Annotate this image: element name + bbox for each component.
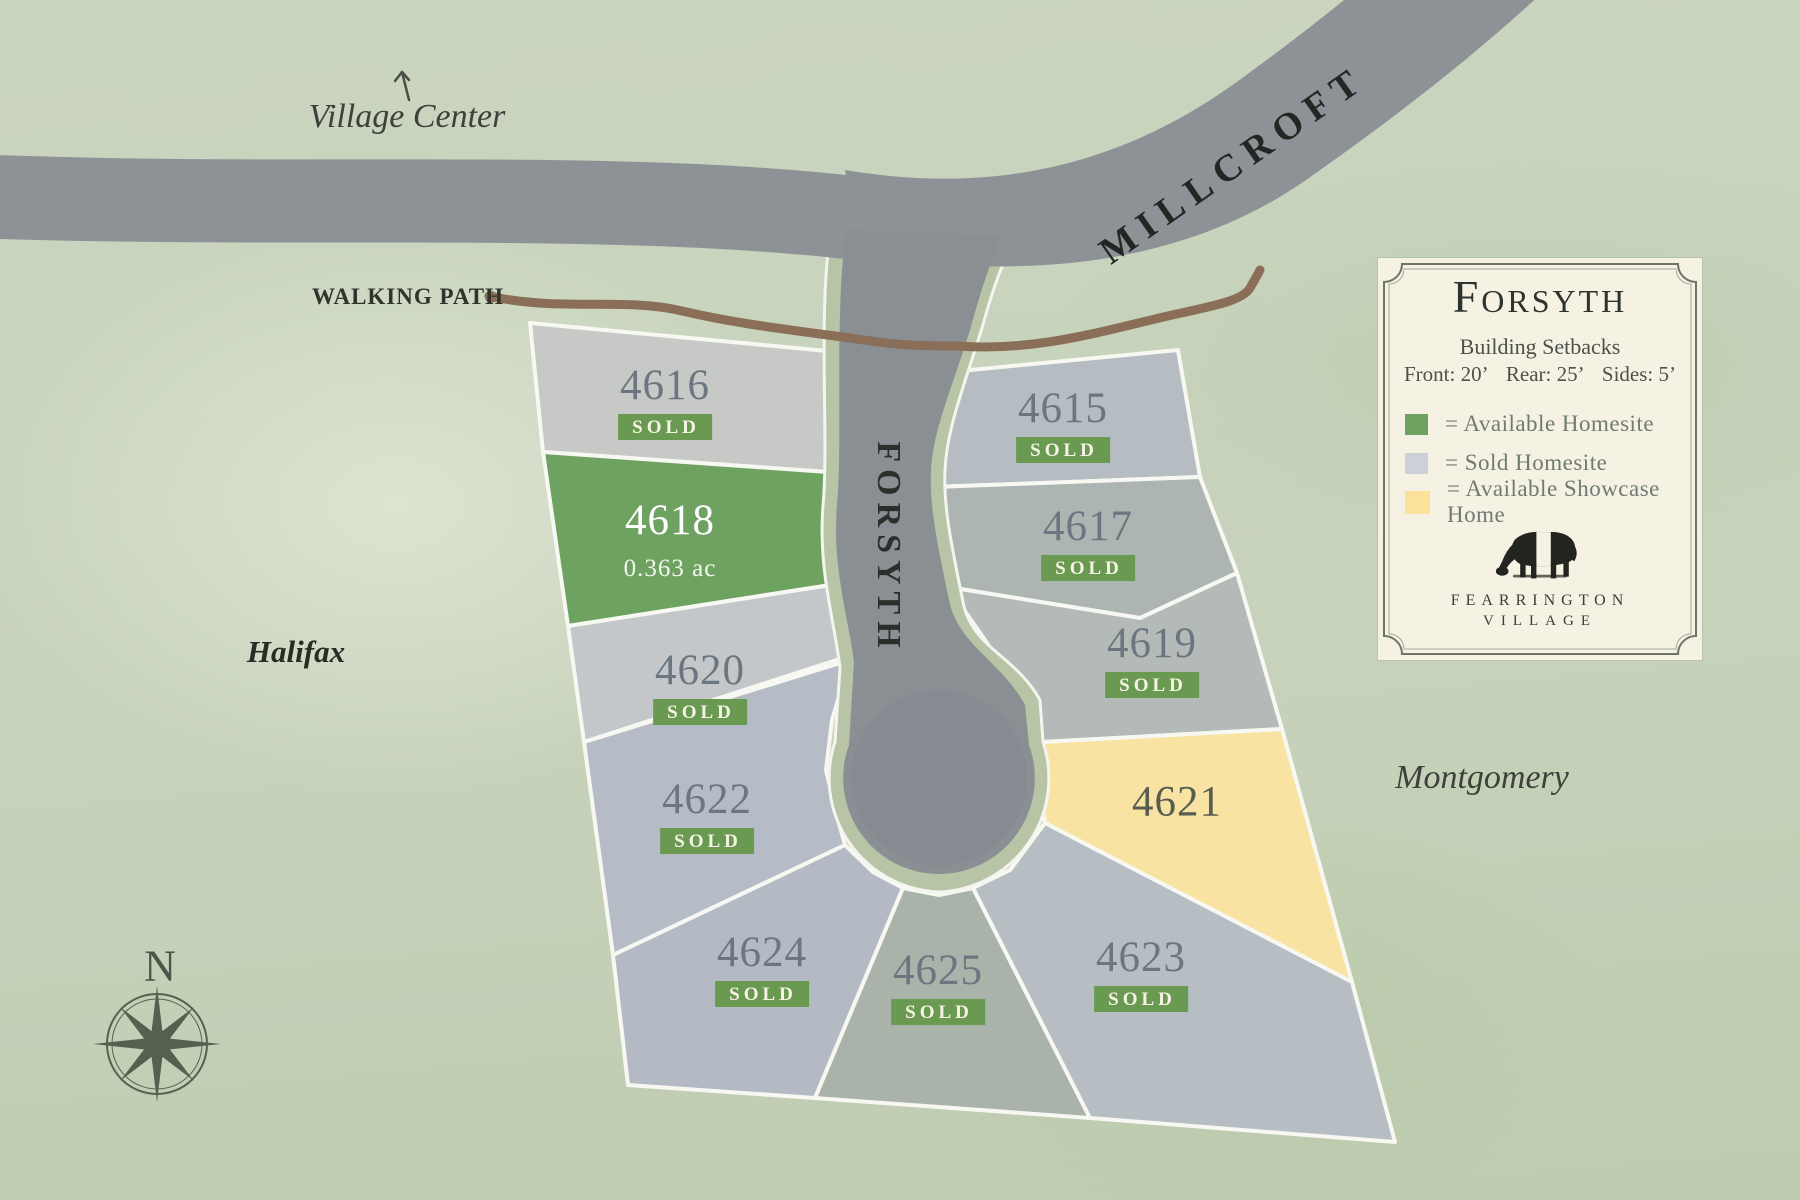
setback-front: Front: 20’: [1404, 362, 1489, 387]
compass-north-label: N: [144, 941, 176, 992]
lot-number: 4625: [891, 949, 985, 992]
lot-number: 4622: [660, 778, 754, 821]
lot-number: 4617: [1041, 505, 1135, 548]
lot-4616-label: 4616 SOLD: [618, 364, 712, 440]
lot-number: 4619: [1105, 622, 1199, 665]
sold-badge: SOLD: [1094, 986, 1188, 1012]
legend-item-label: = Sold Homesite: [1445, 450, 1607, 476]
sold-badge: SOLD: [1105, 672, 1199, 698]
brand-name-line2: Village: [1378, 613, 1702, 630]
available-swatch-icon: [1405, 414, 1428, 435]
lot-4617-label: 4617 SOLD: [1041, 505, 1135, 581]
sold-badge: SOLD: [891, 999, 985, 1025]
sold-badge: SOLD: [653, 699, 747, 725]
lot-4621-label: 4621: [1132, 781, 1222, 824]
village-center-arrow: [395, 72, 409, 100]
lot-number: 4621: [1132, 781, 1222, 824]
setbacks-values: Front: 20’ Rear: 25’ Sides: 5’: [1378, 360, 1702, 387]
lot-number: 4620: [653, 649, 747, 692]
compass-rose: [93, 986, 221, 1102]
legend-item-available: = Available Homesite: [1405, 409, 1702, 439]
legend-items: = Available Homesite = Sold Homesite = A…: [1378, 409, 1702, 517]
setback-rear: Rear: 25’: [1506, 362, 1585, 387]
millcroft-road: [845, 0, 1545, 266]
lot-number: 4624: [715, 931, 809, 974]
legend-item-label: = Available Homesite: [1445, 411, 1654, 437]
setbacks-heading: Building Setbacks: [1378, 334, 1702, 360]
belted-cow-icon: [1495, 527, 1585, 583]
cul-de-sac: [851, 690, 1027, 866]
site-map: Village Center WALKING PATH Halifax Mont…: [0, 0, 1800, 1200]
sold-badge: SOLD: [715, 981, 809, 1007]
legend-item-sold: = Sold Homesite: [1405, 448, 1702, 478]
lot-4615-label: 4615 SOLD: [1016, 387, 1110, 463]
legend-item-label: = Available Showcase Home: [1447, 476, 1702, 528]
sold-swatch-icon: [1405, 453, 1428, 474]
lot-number: 4623: [1094, 936, 1188, 979]
lot-4623-label: 4623 SOLD: [1094, 936, 1188, 1012]
lot-4622-label: 4622 SOLD: [660, 778, 754, 854]
lot-area: 0.363 ac: [624, 556, 717, 581]
montgomery-label: Montgomery: [1395, 759, 1569, 797]
brand-name-line1: Fearrington: [1378, 592, 1702, 610]
legend-title: Forsyth: [1378, 274, 1702, 320]
forsyth-street-label: FORSYTH: [869, 441, 907, 654]
legend-panel: Forsyth Building Setbacks Front: 20’ Rea…: [1378, 258, 1702, 660]
lot-4618-label: 4618 0.363 ac: [624, 499, 717, 581]
lot-4624-label: 4624 SOLD: [715, 931, 809, 1007]
lot-4619-label: 4619 SOLD: [1105, 622, 1199, 698]
legend-item-showcase: = Available Showcase Home: [1405, 487, 1702, 517]
main-road: [0, 154, 880, 263]
setback-sides: Sides: 5’: [1602, 362, 1676, 387]
walking-path-label: WALKING PATH: [312, 284, 504, 310]
lot-number: 4618: [624, 499, 717, 542]
lot-number: 4615: [1016, 387, 1110, 430]
halifax-label: Halifax: [247, 634, 345, 670]
lot-4625-label: 4625 SOLD: [891, 949, 985, 1025]
sold-badge: SOLD: [1016, 437, 1110, 463]
village-center-label: Village Center: [309, 98, 506, 136]
sold-badge: SOLD: [618, 414, 712, 440]
sold-badge: SOLD: [1041, 555, 1135, 581]
sold-badge: SOLD: [660, 828, 754, 854]
brand-block: Fearrington Village: [1378, 527, 1702, 630]
lot-number: 4616: [618, 364, 712, 407]
showcase-swatch-icon: [1405, 491, 1430, 514]
lot-4620-label: 4620 SOLD: [653, 649, 747, 725]
